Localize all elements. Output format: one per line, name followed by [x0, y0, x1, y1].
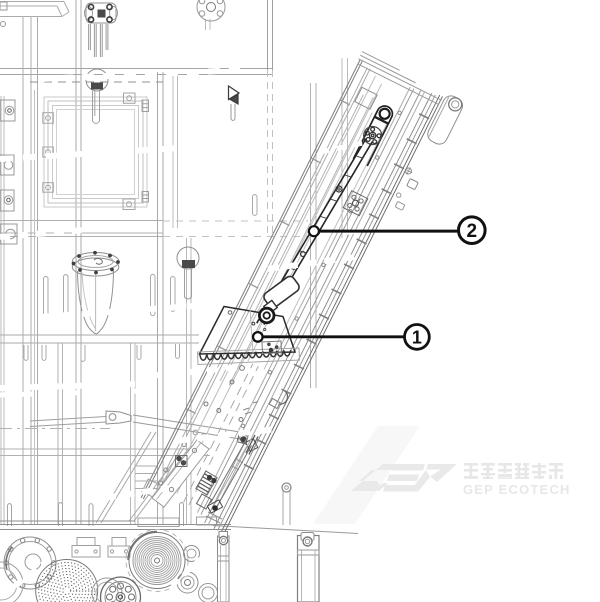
svg-text:2: 2 — [467, 221, 478, 242]
svg-text:GEP ECOTECH: GEP ECOTECH — [463, 482, 571, 497]
svg-text:1: 1 — [412, 327, 422, 347]
